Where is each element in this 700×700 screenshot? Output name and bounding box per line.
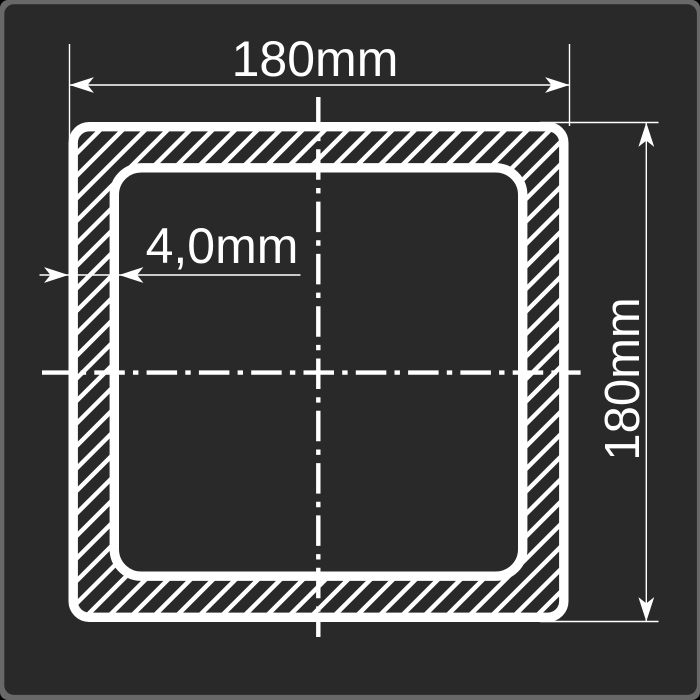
svg-text:4,0mm: 4,0mm [146,218,299,274]
svg-text:180mm: 180mm [232,31,399,87]
svg-text:180mm: 180mm [596,297,650,460]
